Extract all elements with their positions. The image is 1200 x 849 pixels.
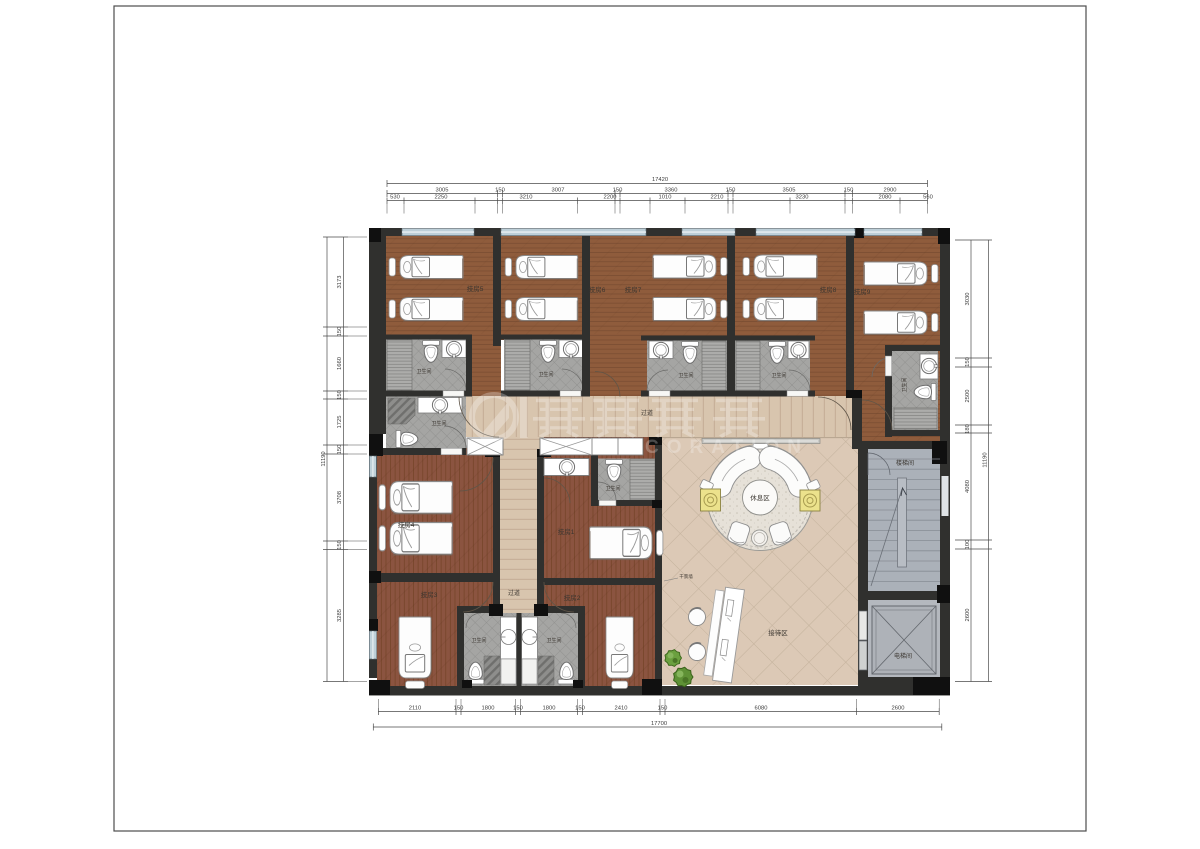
svg-text:技房9: 技房9 [854, 287, 871, 296]
svg-text:楼梯间: 楼梯间 [896, 459, 914, 467]
svg-text:1660: 1660 [337, 357, 343, 370]
svg-text:2600: 2600 [965, 609, 971, 622]
svg-text:干景墙: 干景墙 [679, 573, 693, 580]
svg-text:2250: 2250 [435, 195, 448, 201]
svg-text:150: 150 [454, 706, 464, 712]
svg-text:休息区: 休息区 [750, 493, 770, 502]
svg-text:150: 150 [337, 540, 343, 550]
svg-text:卫生间: 卫生间 [431, 420, 446, 427]
svg-text:530: 530 [390, 195, 400, 201]
svg-text:卫生间: 卫生间 [605, 485, 620, 492]
svg-text:卫生间: 卫生间 [901, 377, 908, 392]
svg-text:卫生间: 卫生间 [678, 372, 693, 379]
svg-text:3007: 3007 [552, 188, 565, 194]
svg-text:3708: 3708 [337, 491, 343, 504]
svg-text:技房3: 技房3 [421, 590, 438, 599]
svg-text:2200: 2200 [604, 195, 617, 201]
svg-text:3173: 3173 [337, 276, 343, 289]
svg-text:技房1: 技房1 [558, 527, 575, 536]
svg-text:过道: 过道 [641, 409, 653, 417]
svg-text:11190: 11190 [983, 452, 989, 467]
svg-text:2410: 2410 [615, 706, 628, 712]
svg-text:2110: 2110 [409, 706, 421, 712]
svg-text:2600: 2600 [892, 706, 905, 712]
svg-text:1725: 1725 [337, 416, 343, 429]
svg-text:过道: 过道 [508, 589, 520, 597]
svg-text:17420: 17420 [652, 177, 668, 183]
svg-text:卫生间: 卫生间 [771, 372, 786, 379]
svg-text:CORATION: CORATION [645, 437, 809, 458]
svg-text:技房6: 技房6 [589, 285, 606, 294]
svg-text:4080: 4080 [965, 480, 971, 493]
svg-text:6080: 6080 [755, 706, 768, 712]
svg-text:100: 100 [965, 540, 971, 550]
svg-text:1800: 1800 [482, 706, 495, 712]
svg-text:2500: 2500 [965, 390, 971, 403]
svg-text:150: 150 [844, 188, 854, 194]
svg-text:150: 150 [513, 706, 523, 712]
svg-text:150: 150 [726, 188, 736, 194]
svg-text:3505: 3505 [783, 188, 796, 194]
svg-text:卫生间: 卫生间 [538, 371, 553, 378]
svg-text:2210: 2210 [711, 195, 724, 201]
svg-text:560: 560 [923, 195, 933, 201]
svg-text:电梯间: 电梯间 [894, 652, 912, 660]
svg-text:1800: 1800 [543, 706, 556, 712]
svg-text:17700: 17700 [651, 721, 667, 727]
svg-text:技房7: 技房7 [625, 285, 642, 294]
svg-text:3210: 3210 [520, 195, 533, 201]
svg-text:卫生间: 卫生间 [416, 368, 431, 375]
svg-text:卫生间: 卫生间 [471, 637, 486, 644]
svg-text:150: 150 [495, 188, 505, 194]
svg-text:卫生间: 卫生间 [546, 637, 561, 644]
svg-text:技房8: 技房8 [820, 285, 837, 294]
svg-text:1010: 1010 [659, 195, 672, 201]
svg-text:150: 150 [965, 357, 971, 367]
svg-text:180: 180 [965, 424, 971, 434]
svg-text:150: 150 [337, 445, 343, 455]
svg-text:150: 150 [658, 706, 668, 712]
svg-text:150: 150 [337, 327, 343, 337]
svg-text:3360: 3360 [665, 188, 678, 194]
svg-text:150: 150 [337, 390, 343, 400]
svg-text:技房4: 技房4 [398, 520, 415, 529]
svg-text:2900: 2900 [884, 188, 897, 194]
svg-text:3230: 3230 [796, 195, 809, 201]
svg-text:3005: 3005 [436, 188, 449, 194]
svg-text:3285: 3285 [337, 609, 343, 622]
svg-text:150: 150 [575, 706, 585, 712]
svg-text:2080: 2080 [879, 195, 892, 201]
svg-text:3030: 3030 [965, 293, 971, 306]
svg-text:接待区: 接待区 [768, 628, 788, 637]
svg-text:150: 150 [613, 188, 623, 194]
svg-text:11190: 11190 [321, 451, 327, 466]
svg-text:技房5: 技房5 [467, 284, 484, 293]
svg-text:技房2: 技房2 [564, 593, 581, 602]
